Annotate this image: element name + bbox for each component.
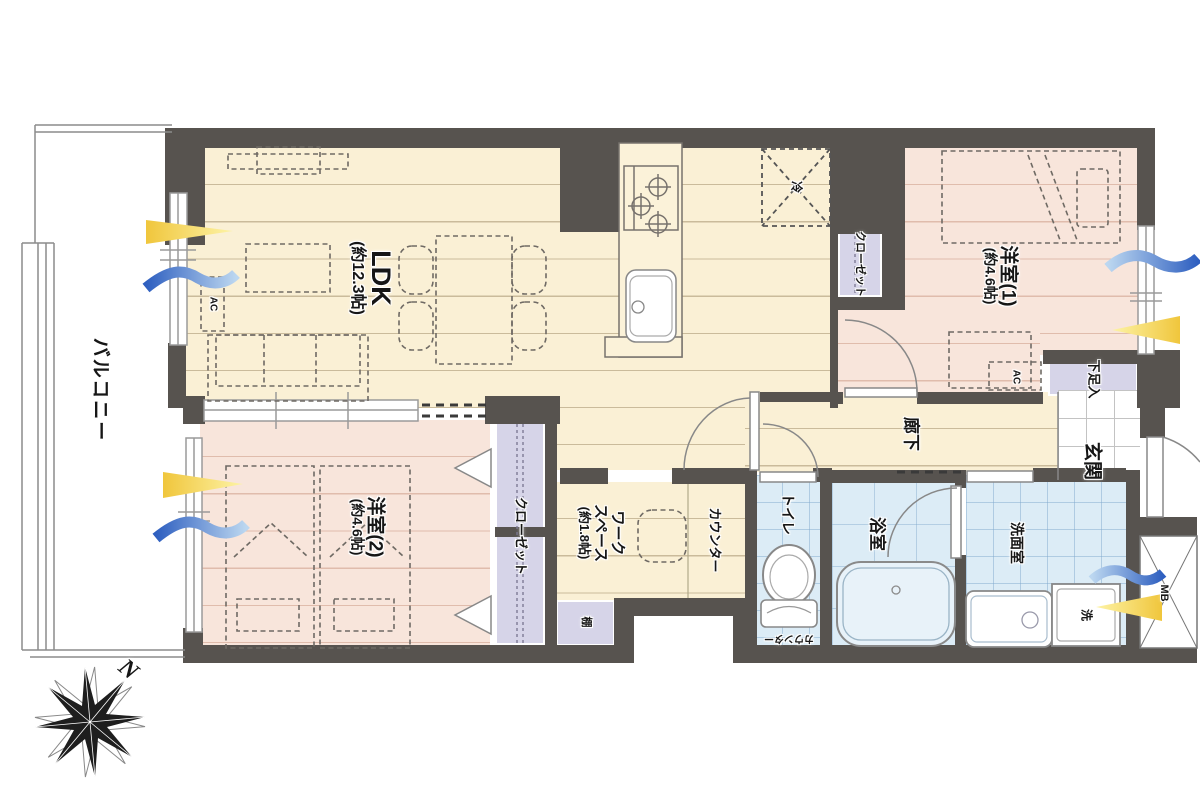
vanity-sink-icon bbox=[966, 591, 1052, 647]
sink-icon bbox=[626, 270, 676, 342]
closet2-label: クローゼット bbox=[513, 497, 528, 575]
door-leaf bbox=[951, 486, 961, 558]
light-arrow bbox=[163, 472, 243, 498]
shoe-storage-label: 下足入 bbox=[1086, 359, 1101, 398]
hallway-label: 廊下 bbox=[901, 417, 920, 451]
workspace-label: ワーク スペース (約1.8帖) bbox=[577, 504, 625, 562]
bedroom1-bed bbox=[942, 151, 1120, 243]
doors bbox=[684, 320, 1200, 558]
bedroom2-size: (約4.6帖) bbox=[349, 496, 365, 557]
bedroom2-label: 洋室(2) (約4.6帖) bbox=[349, 496, 386, 557]
ldk-name: LDK bbox=[366, 241, 396, 315]
bathroom-label: 浴室 bbox=[867, 517, 886, 551]
entrance-label: 玄関 bbox=[1081, 442, 1102, 480]
door-arc bbox=[888, 488, 957, 557]
bifold-door-icon bbox=[455, 596, 491, 634]
bathtub-icon bbox=[837, 562, 955, 646]
sofa bbox=[208, 335, 368, 401]
door-leaf bbox=[760, 472, 816, 482]
ldk-label: LDK (約12.3帖) bbox=[348, 241, 396, 315]
door-leaf bbox=[750, 392, 759, 470]
dining-set bbox=[399, 236, 546, 364]
bedroom1-name: 洋室(1) bbox=[997, 245, 1018, 306]
toilet-icon bbox=[763, 545, 815, 605]
plan-linework bbox=[0, 0, 1200, 800]
washroom-fixtures bbox=[966, 584, 1120, 647]
wind-arrow bbox=[1108, 256, 1198, 268]
toilet-counter-label: カウンター bbox=[764, 632, 814, 643]
tv-board bbox=[228, 154, 348, 169]
workspace-line1: ワーク bbox=[608, 504, 625, 562]
closet1-label: クローゼット bbox=[854, 231, 866, 297]
shelf-label: 棚 bbox=[580, 617, 592, 628]
bifold-door-icon bbox=[455, 449, 491, 487]
door-arc bbox=[684, 398, 750, 470]
balcony-label: バルコニー bbox=[89, 338, 110, 443]
washer-label: 洗 bbox=[1079, 609, 1092, 621]
bedroom2-name: 洋室(2) bbox=[364, 496, 385, 557]
meter-box-label: MB bbox=[1158, 584, 1170, 601]
bedroom1-label: 洋室(1) (約4.6帖) bbox=[982, 245, 1019, 306]
low-table bbox=[246, 244, 330, 292]
ldk-size: (約12.3帖) bbox=[348, 241, 366, 315]
door-arc bbox=[763, 424, 818, 477]
kitchen-fixtures bbox=[605, 143, 830, 357]
toilet-fixture bbox=[761, 545, 817, 627]
washroom-label: 洗面室 bbox=[1008, 522, 1024, 564]
door-arc bbox=[845, 320, 917, 392]
sliding-door-leaf bbox=[967, 471, 1033, 482]
fridge-label: 冷 bbox=[789, 181, 802, 193]
workspace-size: (約1.8帖) bbox=[577, 504, 592, 562]
light-arrow bbox=[146, 220, 233, 244]
workspace-chair bbox=[638, 510, 686, 562]
door-leaf bbox=[845, 388, 917, 397]
toilet-label: トイレ bbox=[779, 493, 795, 535]
ldk-ac-label: AC bbox=[207, 297, 218, 311]
front-door-arc bbox=[1163, 437, 1200, 462]
tv bbox=[257, 147, 320, 174]
bedroom1-size: (約4.6帖) bbox=[982, 245, 998, 306]
floor-plan: バルコニー LDK (約12.3帖) AC 冷 クローゼット 洋室(1) (約4… bbox=[0, 0, 1200, 800]
workspace-counter-label: カウンター bbox=[707, 507, 722, 572]
bathroom-fixtures bbox=[837, 562, 955, 646]
compass-icon bbox=[26, 658, 153, 785]
workspace-line2: スペース bbox=[591, 504, 608, 562]
wind-arrow bbox=[146, 272, 236, 288]
bedroom1-ac-label: AC bbox=[1010, 370, 1021, 384]
front-door-leaf bbox=[1147, 437, 1163, 517]
